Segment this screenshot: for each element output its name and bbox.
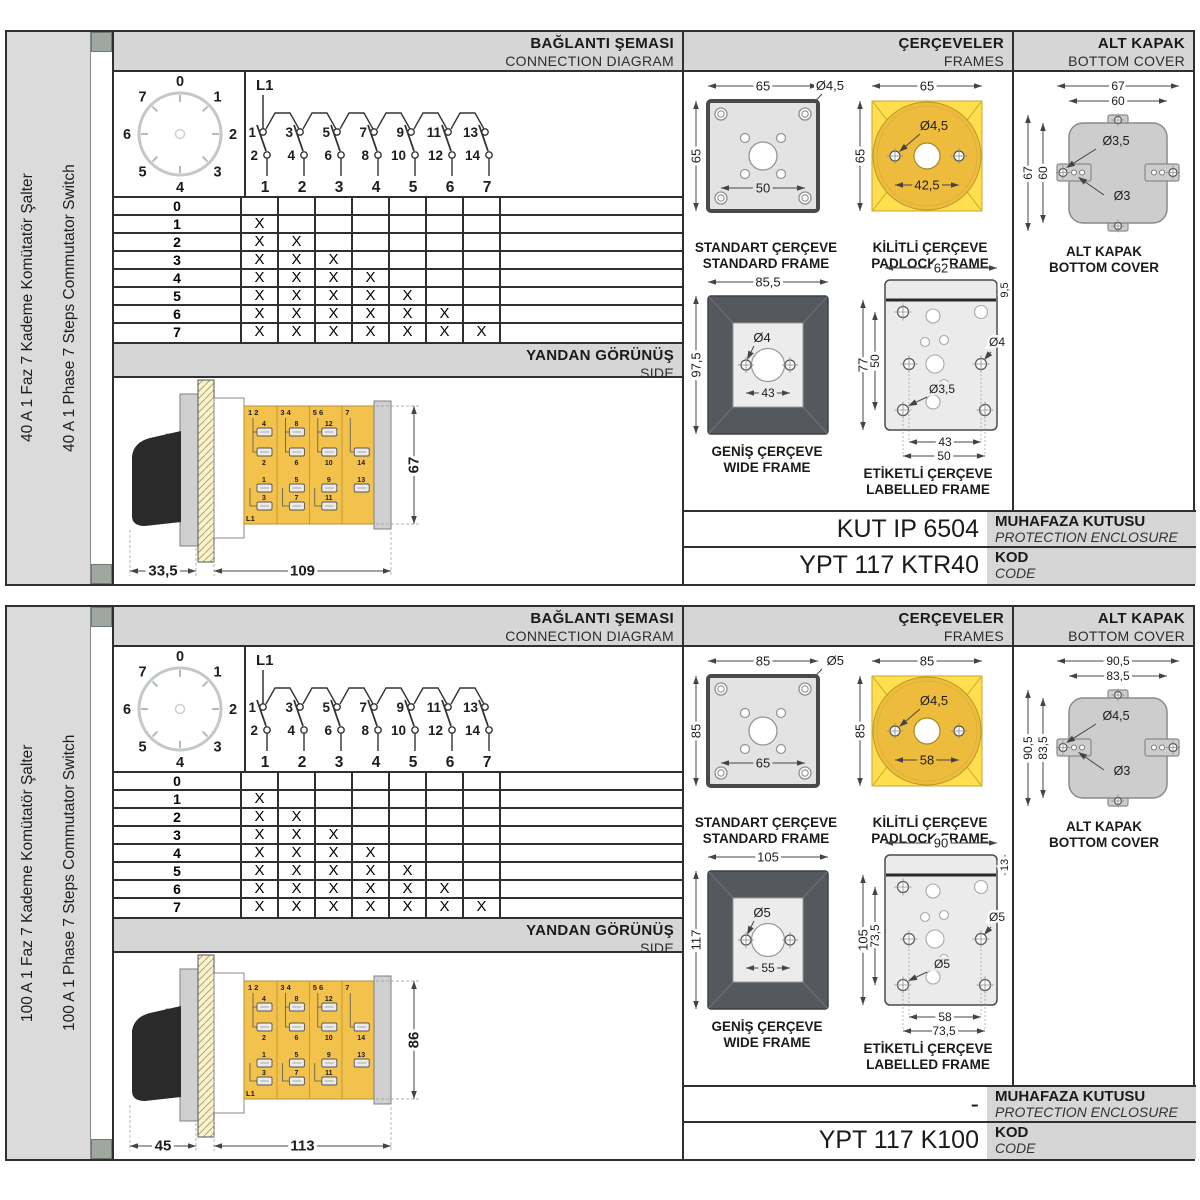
- svg-text:90,5: 90,5: [1021, 736, 1035, 760]
- table-filler-cell: [501, 773, 682, 789]
- enclosure-code-value: KUT IP 6504: [684, 512, 987, 546]
- table-row: 1X: [114, 791, 682, 809]
- cover-header: ALT KAPAK BOTTOM COVER: [1014, 32, 1193, 72]
- svg-text:2: 2: [250, 723, 258, 738]
- step-mark-cell: X: [316, 306, 353, 322]
- svg-text:86: 86: [406, 1032, 423, 1049]
- product-code-label: KOD CODE: [987, 548, 1196, 584]
- svg-text:L1: L1: [246, 514, 255, 523]
- step-mark-cell: X: [242, 252, 279, 268]
- padlock-frame-caption-turkish: KİLİTLİ ÇERÇEVE: [848, 240, 1012, 256]
- step-mark-cell: [390, 234, 427, 250]
- svg-text:0: 0: [176, 649, 184, 665]
- svg-text:65: 65: [689, 149, 704, 163]
- standard-frame-content: 85Ø58565: [689, 653, 845, 786]
- step-mark-cell: X: [353, 863, 390, 879]
- step-number: 3: [114, 252, 242, 268]
- svg-text:5: 5: [294, 477, 298, 484]
- step-mark-cell: [390, 773, 427, 789]
- step-mark-cell: X: [242, 270, 279, 286]
- cover-caption-turkish: ALT KAPAK: [1016, 244, 1192, 260]
- svg-text:11: 11: [427, 125, 442, 140]
- step-number: 4: [114, 270, 242, 286]
- svg-text:5 6: 5 6: [313, 983, 323, 992]
- step-mark-cell: [353, 809, 390, 825]
- frames-header-turkish: ÇERÇEVELER: [684, 34, 1004, 53]
- svg-text:12: 12: [428, 723, 443, 738]
- svg-text:5: 5: [409, 754, 418, 771]
- table-row: 7XXXXXXX: [114, 324, 682, 342]
- padlock-frame-caption-turkish: KİLİTLİ ÇERÇEVE: [848, 815, 1012, 831]
- section-gutter: [91, 607, 112, 1159]
- svg-text:1: 1: [213, 665, 221, 681]
- svg-text:Ø3,5: Ø3,5: [1102, 134, 1129, 148]
- svg-text:83,5: 83,5: [1106, 669, 1130, 683]
- step-contact-table: 01X2XX3XXX4XXXX5XXXXX6XXXXXX7XXXXXXX: [114, 198, 682, 342]
- cover-header-turkish: ALT KAPAK: [1014, 609, 1185, 628]
- frames-header-english: FRAMES: [684, 53, 1004, 70]
- corner-marker-bottom: [91, 564, 112, 584]
- svg-text:5: 5: [322, 125, 330, 140]
- svg-text:5: 5: [138, 164, 146, 180]
- step-mark-cell: X: [279, 899, 316, 917]
- standard-frame-caption-turkish: STANDART ÇERÇEVE: [684, 815, 848, 831]
- padlock-frame-content: 8585Ø4,558: [853, 654, 983, 787]
- step-mark-cell: [353, 252, 390, 268]
- wide-frame-figure: 105117Ø555 GENİŞ ÇERÇEVE WIDE FRAME: [686, 847, 848, 1051]
- enclosure-label-english: PROTECTION ENCLOSURE: [995, 530, 1196, 545]
- svg-text:8: 8: [361, 723, 369, 738]
- step-mark-cell: [279, 216, 316, 232]
- svg-text:7: 7: [359, 700, 367, 715]
- code-label-english: CODE: [995, 1141, 1196, 1156]
- svg-text:73,5: 73,5: [932, 1024, 956, 1038]
- enclosure-code-value: -: [684, 1087, 987, 1121]
- svg-text:4: 4: [176, 755, 184, 771]
- table-filler-cell: [501, 306, 682, 322]
- ladder-drawing: L112134256378491051112613147: [248, 652, 492, 771]
- enclosure-code-row: KUT IP 6504 MUHAFAZA KUTUSU PROTECTION E…: [684, 512, 1196, 548]
- product-code-label: KOD CODE: [987, 1123, 1196, 1159]
- svg-text:2: 2: [298, 754, 307, 771]
- step-number: 6: [114, 881, 242, 897]
- step-mark-cell: X: [316, 899, 353, 917]
- table-row: 2XX: [114, 234, 682, 252]
- padlock-frame-figure: 6565Ø4,542,5 KİLİTLİ ÇERÇEVE PADLOCK FRA…: [848, 76, 1012, 272]
- svg-text:L1: L1: [256, 652, 274, 669]
- svg-text:60: 60: [1111, 94, 1125, 108]
- svg-text:12: 12: [428, 148, 443, 163]
- step-mark-cell: [464, 198, 501, 214]
- step-mark-cell: X: [279, 270, 316, 286]
- wide-frame-caption-english: WIDE FRAME: [686, 1035, 848, 1051]
- svg-text:65: 65: [756, 79, 770, 94]
- svg-text:10: 10: [391, 723, 406, 738]
- svg-text:1: 1: [248, 125, 256, 140]
- svg-text:6: 6: [324, 723, 332, 738]
- svg-text:85: 85: [756, 654, 770, 669]
- step-mark-cell: X: [242, 288, 279, 304]
- svg-text:65: 65: [756, 756, 770, 771]
- svg-text:6: 6: [446, 179, 455, 196]
- svg-text:Ø3,5: Ø3,5: [929, 382, 955, 396]
- step-number: 4: [114, 845, 242, 861]
- table-filler-cell: [501, 288, 682, 304]
- step-mark-cell: X: [353, 845, 390, 861]
- step-mark-cell: X: [279, 809, 316, 825]
- table-row: 7XXXXXXX: [114, 899, 682, 917]
- step-mark-cell: [353, 198, 390, 214]
- svg-text:12: 12: [325, 421, 333, 428]
- step-mark-cell: X: [427, 899, 464, 917]
- svg-text:Ø4,5: Ø4,5: [920, 118, 948, 133]
- svg-text:43: 43: [938, 435, 952, 449]
- svg-text:45: 45: [155, 1138, 172, 1155]
- bottom-cover-content: 90,583,590,583,5Ø4,5Ø3: [1021, 654, 1180, 808]
- table-filler-cell: [501, 863, 682, 879]
- padlock-frame-figure: 8585Ø4,558 KİLİTLİ ÇERÇEVE PADLOCK FRAME: [848, 651, 1012, 847]
- svg-text:90,5: 90,5: [1106, 654, 1130, 668]
- svg-text:7: 7: [359, 125, 367, 140]
- table-filler-cell: [501, 198, 682, 214]
- table-row: 0: [114, 198, 682, 216]
- table-row: 6XXXXXX: [114, 881, 682, 899]
- svg-text:6: 6: [123, 127, 131, 143]
- bottom-cover-drawing: 67606760Ø3,5Ø3: [1016, 76, 1192, 244]
- table-filler-cell: [501, 845, 682, 861]
- step-mark-cell: [464, 791, 501, 807]
- svg-text:1: 1: [262, 1052, 266, 1059]
- table-filler-cell: [501, 827, 682, 843]
- step-number: 5: [114, 288, 242, 304]
- step-mark-cell: X: [242, 791, 279, 807]
- step-mark-cell: X: [279, 845, 316, 861]
- labelled-frame-figure: 629,57750Ø4Ø3,54350 ETİKETLİ ÇERÇEVE LAB…: [844, 260, 1012, 498]
- section-sidebar: 100 A 1 Faz 7 Kademe Komütatör Şalter 10…: [7, 607, 91, 1159]
- connection-diagram-row: 01234567 L112134256378491051112613147: [114, 72, 682, 198]
- step-mark-cell: X: [316, 270, 353, 286]
- svg-text:13: 13: [357, 1052, 365, 1059]
- svg-text:90: 90: [934, 836, 948, 851]
- labelled-frame-caption-turkish: ETİKETLİ ÇERÇEVE: [844, 1041, 1012, 1057]
- svg-text:50: 50: [937, 449, 951, 463]
- padlock-frame-drawing: 6565Ø4,542,5: [850, 76, 1010, 240]
- labelled-frame-drawing: 901310573,5Ø5Ø55873,5: [845, 835, 1011, 1041]
- svg-text:Ø4,5: Ø4,5: [920, 693, 948, 708]
- step-mark-cell: [390, 845, 427, 861]
- side-header-turkish: YANDAN GÖRÜNÜŞ: [114, 346, 674, 365]
- step-mark-cell: X: [353, 324, 390, 342]
- step-mark-cell: [390, 827, 427, 843]
- svg-text:6: 6: [324, 148, 332, 163]
- step-mark-cell: [390, 809, 427, 825]
- step-mark-cell: [316, 198, 353, 214]
- svg-text:3: 3: [213, 164, 221, 180]
- product-title-turkish: 40 A 1 Faz 7 Kademe Komütatör Şalter: [7, 32, 49, 584]
- labelled-frame-drawing: 629,57750Ø4Ø3,54350: [845, 260, 1011, 466]
- step-mark-cell: [464, 216, 501, 232]
- svg-text:3: 3: [335, 179, 344, 196]
- svg-text:2: 2: [229, 702, 237, 718]
- svg-text:4: 4: [176, 180, 184, 196]
- connection-header-english: CONNECTION DIAGRAM: [114, 628, 674, 645]
- svg-text:7: 7: [138, 665, 146, 681]
- dial-drawing: 01234567: [123, 74, 237, 196]
- labelled-frame-caption-turkish: ETİKETLİ ÇERÇEVE: [844, 466, 1012, 482]
- step-mark-cell: [464, 881, 501, 897]
- bottom-cover-column: ALT KAPAK BOTTOM COVER 67606760Ø3,5Ø3 AL…: [1012, 32, 1193, 510]
- svg-text:58: 58: [938, 1010, 952, 1024]
- step-mark-cell: [427, 791, 464, 807]
- svg-text:67: 67: [406, 457, 423, 474]
- svg-text:13: 13: [463, 125, 479, 140]
- svg-text:6: 6: [294, 1035, 298, 1042]
- svg-text:10: 10: [325, 1035, 333, 1042]
- step-mark-cell: X: [390, 899, 427, 917]
- frames-column: ÇERÇEVELER FRAMES 85Ø58565 STANDART ÇERÇ…: [682, 607, 1012, 1085]
- svg-text:14: 14: [357, 1035, 365, 1042]
- svg-text:3: 3: [335, 754, 344, 771]
- step-mark-cell: X: [390, 306, 427, 322]
- frames-header-english: FRAMES: [684, 628, 1004, 645]
- step-mark-cell: [353, 791, 390, 807]
- frames-column: ÇERÇEVELER FRAMES 65Ø4,56550 STANDART ÇE…: [682, 32, 1012, 510]
- step-mark-cell: X: [279, 252, 316, 268]
- side-view-header: YANDAN GÖRÜNÜŞ SIDE: [114, 917, 682, 953]
- svg-text:1: 1: [262, 477, 266, 484]
- step-number: 7: [114, 324, 242, 342]
- step-mark-cell: X: [390, 881, 427, 897]
- svg-text:L1: L1: [256, 77, 274, 94]
- step-mark-cell: [316, 234, 353, 250]
- step-mark-cell: X: [279, 827, 316, 843]
- labelled-frame-figure: 901310573,5Ø5Ø55873,5 ETİKETLİ ÇERÇEVE L…: [844, 835, 1012, 1073]
- cover-header-english: BOTTOM COVER: [1014, 628, 1185, 645]
- svg-text:Ø3: Ø3: [1114, 189, 1131, 203]
- side-header-turkish: YANDAN GÖRÜNÜŞ: [114, 921, 674, 940]
- svg-text:Ø5: Ø5: [989, 910, 1005, 924]
- table-filler-cell: [501, 899, 682, 917]
- product-title-english: 40 A 1 Phase 7 Steps Commutator Switch: [49, 32, 91, 584]
- step-mark-cell: X: [279, 324, 316, 342]
- step-mark-cell: [316, 809, 353, 825]
- step-mark-cell: [464, 288, 501, 304]
- wide-frame-caption-english: WIDE FRAME: [686, 460, 848, 476]
- svg-text:11: 11: [427, 700, 442, 715]
- svg-text:1: 1: [261, 179, 270, 196]
- dial-drawing: 01234567: [123, 649, 237, 771]
- connection-header: BAĞLANTI ŞEMASI CONNECTION DIAGRAM: [114, 607, 682, 647]
- svg-text:1: 1: [248, 700, 256, 715]
- wide-frame-drawing: 105117Ø555: [686, 847, 848, 1019]
- svg-text:50: 50: [868, 354, 882, 368]
- step-mark-cell: X: [242, 216, 279, 232]
- codes-table: - MUHAFAZA KUTUSU PROTECTION ENCLOSURE Y…: [682, 1085, 1196, 1159]
- step-mark-cell: [464, 270, 501, 286]
- standard-frame-figure: 85Ø58565 STANDART ÇERÇEVE STANDARD FRAME: [684, 651, 848, 847]
- step-mark-cell: X: [242, 881, 279, 897]
- svg-text:13: 13: [357, 477, 365, 484]
- step-mark-cell: X: [242, 809, 279, 825]
- svg-text:12: 12: [325, 996, 333, 1003]
- svg-text:117: 117: [689, 930, 704, 951]
- connection-column: BAĞLANTI ŞEMASI CONNECTION DIAGRAM 01234…: [112, 607, 682, 1159]
- wide-frame-figure: 85,597,5Ø443 GENİŞ ÇERÇEVE WIDE FRAME: [686, 272, 848, 476]
- step-mark-cell: X: [279, 863, 316, 879]
- svg-text:13: 13: [463, 700, 479, 715]
- step-mark-cell: [279, 198, 316, 214]
- svg-text:0: 0: [176, 74, 184, 90]
- bottom-cover-column: ALT KAPAK BOTTOM COVER 90,583,590,583,5Ø…: [1012, 607, 1193, 1085]
- svg-text:85: 85: [920, 654, 934, 669]
- padlock-frame-drawing: 8585Ø4,558: [850, 651, 1010, 815]
- labelled-frame-caption-english: LABELLED FRAME: [844, 1057, 1012, 1073]
- table-filler-cell: [501, 216, 682, 232]
- step-number: 1: [114, 791, 242, 807]
- table-filler-cell: [501, 791, 682, 807]
- step-mark-cell: [427, 234, 464, 250]
- enclosure-code-label: MUHAFAZA KUTUSU PROTECTION ENCLOSURE: [987, 1087, 1196, 1121]
- labelled-frame-content: 629,57750Ø4Ø3,54350: [856, 261, 1012, 464]
- step-mark-cell: [464, 809, 501, 825]
- svg-text:33,5: 33,5: [148, 563, 177, 580]
- enclosure-code-label: MUHAFAZA KUTUSU PROTECTION ENCLOSURE: [987, 512, 1196, 546]
- step-number: 0: [114, 198, 242, 214]
- step-mark-cell: X: [279, 234, 316, 250]
- svg-text:2: 2: [262, 460, 266, 467]
- svg-text:L1: L1: [246, 1089, 255, 1098]
- svg-text:4: 4: [262, 421, 266, 428]
- standard-frame-drawing: 85Ø58565: [686, 651, 846, 815]
- step-mark-cell: X: [316, 845, 353, 861]
- bottom-cover-figure: 90,583,590,583,5Ø4,5Ø3 ALT KAPAK BOTTOM …: [1016, 651, 1192, 851]
- cover-caption-turkish: ALT KAPAK: [1016, 819, 1192, 835]
- step-mark-cell: X: [427, 324, 464, 342]
- step-mark-cell: X: [242, 827, 279, 843]
- svg-text:73,5: 73,5: [868, 924, 882, 948]
- step-mark-cell: X: [464, 324, 501, 342]
- svg-text:85,5: 85,5: [755, 275, 780, 290]
- table-row: 0: [114, 773, 682, 791]
- step-mark-cell: [390, 198, 427, 214]
- wide-frame-content: 85,597,5Ø443: [689, 275, 829, 435]
- product-section: 40 A 1 Faz 7 Kademe Komütatör Şalter 40 …: [5, 30, 1195, 586]
- svg-text:43: 43: [761, 386, 775, 400]
- table-row: 3XXX: [114, 827, 682, 845]
- step-mark-cell: X: [353, 288, 390, 304]
- svg-text:Ø4: Ø4: [753, 330, 770, 345]
- code-label-english: CODE: [995, 566, 1196, 581]
- standard-frame-drawing: 65Ø4,56550: [686, 76, 846, 240]
- svg-text:8: 8: [294, 421, 298, 428]
- svg-text:9: 9: [396, 700, 404, 715]
- svg-text:2: 2: [250, 148, 258, 163]
- step-mark-cell: X: [427, 306, 464, 322]
- svg-text:4: 4: [287, 148, 295, 163]
- step-mark-cell: X: [242, 234, 279, 250]
- enclosure-label-english: PROTECTION ENCLOSURE: [995, 1105, 1196, 1120]
- svg-text:4: 4: [372, 754, 381, 771]
- step-mark-cell: X: [242, 324, 279, 342]
- svg-text:14: 14: [465, 148, 481, 163]
- step-mark-cell: X: [316, 863, 353, 879]
- corner-marker-top: [91, 607, 112, 627]
- cover-caption-english: BOTTOM COVER: [1016, 835, 1192, 851]
- table-filler-cell: [501, 809, 682, 825]
- step-mark-cell: X: [390, 288, 427, 304]
- svg-text:3 4: 3 4: [280, 408, 291, 417]
- svg-text:5: 5: [409, 179, 418, 196]
- svg-text:7: 7: [294, 495, 298, 502]
- bottom-cover-drawing: 90,583,590,583,5Ø4,5Ø3: [1016, 651, 1192, 819]
- step-mark-cell: [316, 773, 353, 789]
- svg-text:6: 6: [123, 702, 131, 718]
- step-mark-cell: X: [316, 881, 353, 897]
- svg-text:7: 7: [483, 179, 492, 196]
- svg-text:Ø5: Ø5: [753, 905, 770, 920]
- step-mark-cell: [464, 827, 501, 843]
- step-number: 5: [114, 863, 242, 879]
- cover-header: ALT KAPAK BOTTOM COVER: [1014, 607, 1193, 647]
- step-mark-cell: [464, 234, 501, 250]
- wide-frame-caption-turkish: GENİŞ ÇERÇEVE: [686, 1019, 848, 1035]
- step-mark-cell: X: [242, 306, 279, 322]
- svg-text:Ø5: Ø5: [934, 957, 950, 971]
- standard-frame-caption-english: STANDARD FRAME: [684, 831, 848, 847]
- enclosure-label-turkish: MUHAFAZA KUTUSU: [995, 513, 1196, 530]
- svg-text:85: 85: [689, 724, 704, 738]
- connection-column: BAĞLANTI ŞEMASI CONNECTION DIAGRAM 01234…: [112, 32, 682, 584]
- connection-header: BAĞLANTI ŞEMASI CONNECTION DIAGRAM: [114, 32, 682, 72]
- step-mark-cell: [279, 773, 316, 789]
- svg-text:13: 13: [999, 859, 1011, 871]
- svg-text:7: 7: [294, 1070, 298, 1077]
- product-code-value: YPT 117 KTR40: [684, 548, 987, 584]
- svg-text:3 4: 3 4: [280, 983, 291, 992]
- side-view-content: 1 24213L13 486575 61210911714134511386: [130, 955, 423, 1155]
- step-mark-cell: X: [279, 306, 316, 322]
- enclosure-label-turkish: MUHAFAZA KUTUSU: [995, 1088, 1196, 1105]
- svg-text:1: 1: [213, 90, 221, 106]
- svg-text:1 2: 1 2: [248, 408, 258, 417]
- product-code-row: YPT 117 KTR40 KOD CODE: [684, 548, 1196, 584]
- code-label-turkish: KOD: [995, 1124, 1196, 1141]
- table-row: 5XXXXX: [114, 863, 682, 881]
- svg-text:Ø4: Ø4: [989, 335, 1005, 349]
- svg-text:67: 67: [1021, 166, 1035, 180]
- step-mark-cell: [242, 773, 279, 789]
- step-number: 7: [114, 899, 242, 917]
- step-mark-cell: X: [316, 288, 353, 304]
- table-filler-cell: [501, 270, 682, 286]
- svg-text:9,5: 9,5: [999, 282, 1011, 297]
- svg-text:3: 3: [285, 125, 293, 140]
- frames-header: ÇERÇEVELER FRAMES: [684, 32, 1012, 72]
- connection-header-english: CONNECTION DIAGRAM: [114, 53, 674, 70]
- svg-text:7: 7: [483, 754, 492, 771]
- product-title-english: 100 A 1 Phase 7 Steps Commutator Switch: [49, 607, 91, 1159]
- standard-frame-content: 65Ø4,56550: [689, 78, 845, 211]
- standard-frame-caption-turkish: STANDART ÇERÇEVE: [684, 240, 848, 256]
- svg-text:105: 105: [757, 850, 779, 865]
- svg-text:4: 4: [287, 723, 295, 738]
- labelled-frame-caption-english: LABELLED FRAME: [844, 482, 1012, 498]
- step-mark-cell: X: [279, 288, 316, 304]
- svg-text:60: 60: [1036, 166, 1050, 180]
- step-mark-cell: X: [316, 827, 353, 843]
- step-mark-cell: [390, 270, 427, 286]
- svg-text:55: 55: [761, 961, 775, 975]
